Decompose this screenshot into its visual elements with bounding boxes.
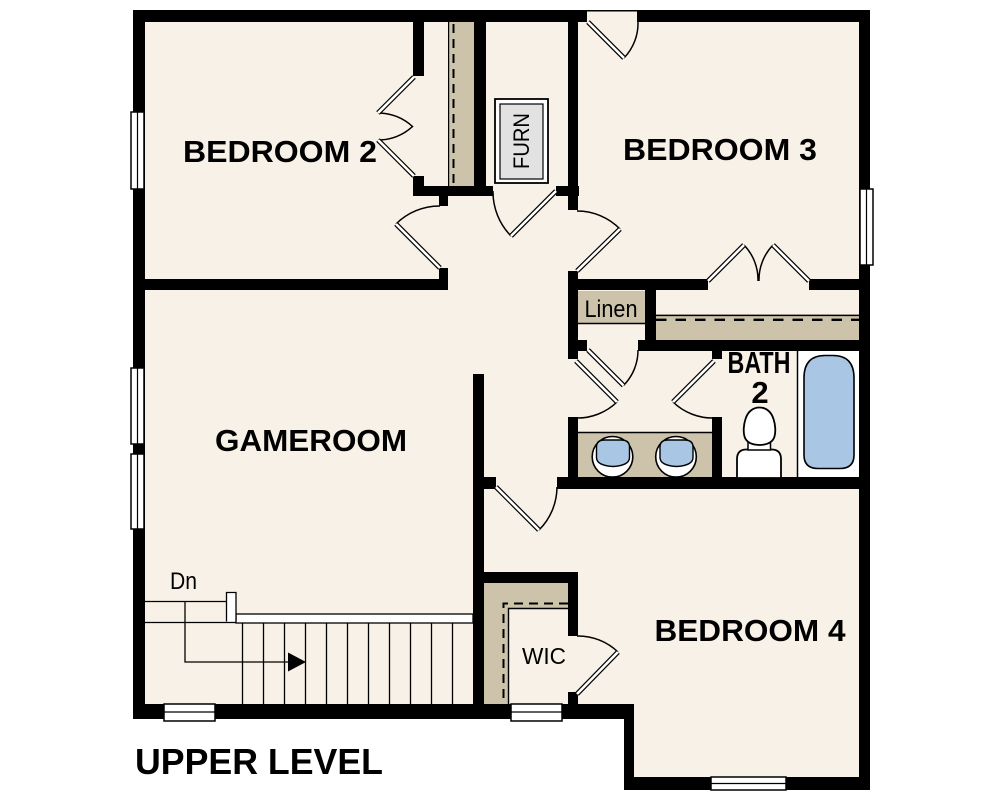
svg-text:BEDROOM 3: BEDROOM 3 bbox=[623, 132, 817, 167]
svg-text:BEDROOM 2: BEDROOM 2 bbox=[183, 134, 377, 169]
svg-text:FURN: FURN bbox=[509, 113, 534, 169]
svg-text:Dn: Dn bbox=[170, 568, 197, 595]
svg-text:Linen: Linen bbox=[585, 296, 638, 323]
svg-text:2: 2 bbox=[751, 375, 768, 410]
svg-text:WIC: WIC bbox=[522, 643, 566, 669]
svg-text:BEDROOM 4: BEDROOM 4 bbox=[655, 613, 847, 648]
svg-text:GAMEROOM: GAMEROOM bbox=[215, 423, 407, 458]
svg-text:UPPER LEVEL: UPPER LEVEL bbox=[135, 741, 383, 782]
